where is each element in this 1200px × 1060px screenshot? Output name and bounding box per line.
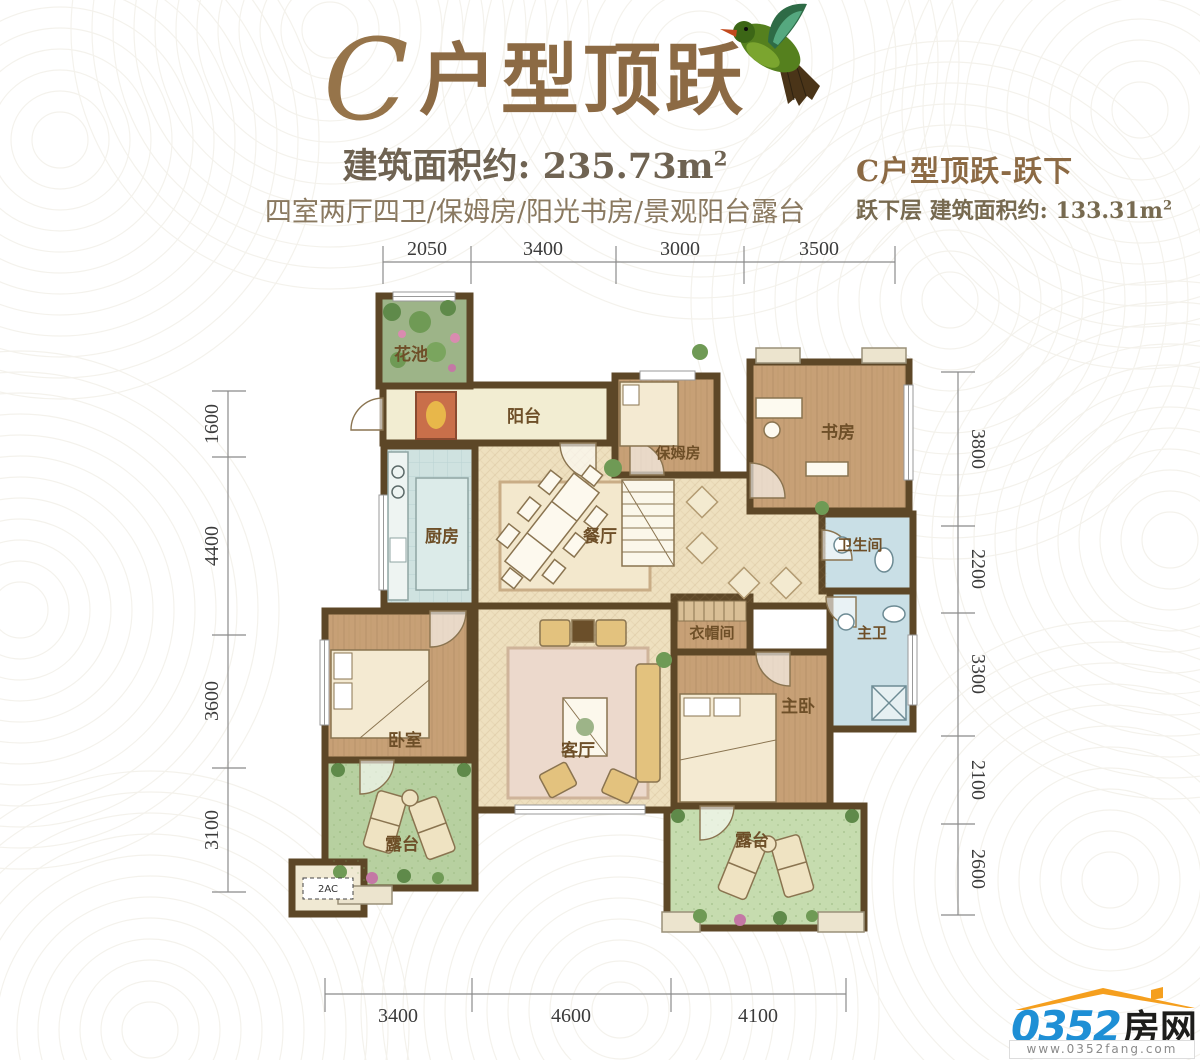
- dim-right-5: 2600: [967, 849, 989, 889]
- area-superscript: 2: [714, 146, 728, 170]
- dim-bottom-1: 3400: [378, 1005, 418, 1027]
- side-area-value: 133.31m: [1055, 198, 1162, 224]
- dim-right-1: 3800: [967, 429, 989, 469]
- label-master-bedroom: 主卧: [781, 696, 815, 717]
- dim-right-3: 3300: [967, 654, 989, 694]
- dim-bottom-2: 4600: [551, 1005, 591, 1027]
- label-bathroom: 卫生间: [837, 536, 882, 554]
- dim-right-4: 2100: [967, 760, 989, 800]
- cloakroom-shelves: [678, 601, 746, 621]
- area-value: 235.73m: [543, 146, 714, 187]
- label-living: 客厅: [560, 740, 595, 761]
- dim-left-4: 3100: [201, 810, 223, 850]
- logo-website: www.0352fang.com: [1009, 1040, 1195, 1059]
- label-master-bath: 主卫: [857, 624, 887, 642]
- label-bedroom: 卧室: [388, 730, 422, 751]
- label-cloakroom: 衣帽间: [689, 624, 734, 642]
- side-title: C户型顶跃-跃下: [856, 148, 1073, 190]
- dim-top-1: 2050: [407, 238, 447, 260]
- dim-bottom-3: 4100: [738, 1005, 778, 1027]
- dim-top-4: 3500: [799, 238, 839, 260]
- side-area-superscript: 2: [1163, 199, 1172, 214]
- dim-top-2: 3400: [523, 238, 563, 260]
- side-area-prefix: 跃下层 建筑面积约:: [856, 198, 1055, 224]
- title-text: 户型顶跃: [419, 35, 747, 126]
- label-terrace-left: 露台: [385, 834, 419, 855]
- dim-left-2: 4400: [201, 526, 223, 566]
- dim-left-1: 1600: [201, 404, 223, 444]
- label-study: 书房: [821, 422, 855, 443]
- staircase: [622, 480, 674, 566]
- nanny-bed: [620, 382, 678, 446]
- label-flower-bed: 花池: [394, 344, 428, 365]
- label-terrace-right: 露台: [735, 830, 769, 851]
- page-title: C户型顶跃: [0, 16, 1070, 146]
- side-area-line: 跃下层 建筑面积约: 133.31m2: [856, 193, 1172, 225]
- site-logo: 0352房网 www.0352fang.com: [1003, 986, 1198, 1058]
- dim-right-2: 2200: [967, 549, 989, 589]
- label-balcony: 阳台: [507, 406, 541, 427]
- label-nanny: 保姆房: [654, 444, 700, 462]
- label-dining: 餐厅: [583, 526, 617, 547]
- area-prefix: 建筑面积约:: [342, 146, 542, 187]
- master-bed: [680, 694, 776, 802]
- label-kitchen: 厨房: [425, 526, 459, 547]
- label-ac-unit: 2AC: [318, 884, 338, 895]
- dim-top-3: 3000: [660, 238, 700, 260]
- dim-left-3: 3600: [201, 681, 223, 721]
- title-letter: C: [323, 16, 409, 146]
- bedroom-bed: [331, 650, 429, 738]
- entry-door: [351, 398, 383, 430]
- flyer-canvas: C户型顶跃 建筑面积约: 235.73m2 四室两厅四卫/保姆房/阳光书房/景观…: [0, 0, 1200, 1060]
